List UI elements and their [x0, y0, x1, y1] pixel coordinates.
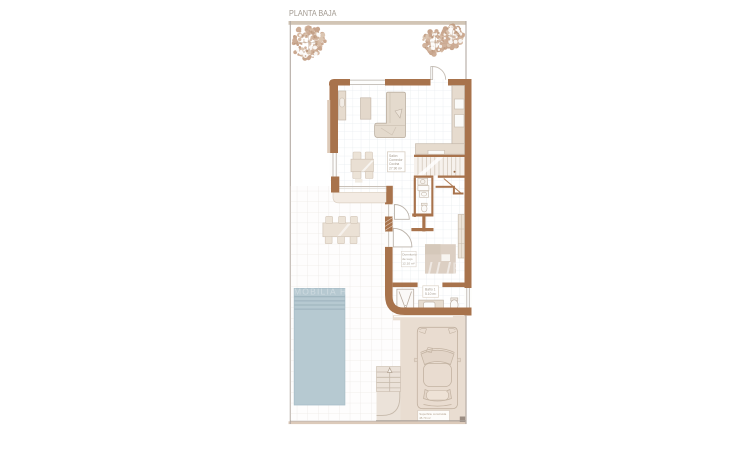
svg-text:27.90 m²: 27.90 m²: [389, 166, 403, 170]
svg-text:Baño 1: Baño 1: [425, 288, 436, 292]
svg-text:de Lujo: de Lujo: [402, 257, 412, 261]
svg-text:Cocina: Cocina: [389, 162, 399, 166]
svg-text:MOBILIA HOM: MOBILIA HOM: [294, 287, 363, 297]
svg-text:PLANTA BAJA: PLANTA BAJA: [289, 8, 337, 18]
svg-text:45.70 m²: 45.70 m²: [419, 416, 430, 420]
svg-text:12.10 m²: 12.10 m²: [402, 261, 414, 265]
svg-text:5.10 m²: 5.10 m²: [425, 292, 437, 296]
svg-text:E: E: [452, 259, 464, 278]
svg-text:Dormitorio: Dormitorio: [402, 253, 417, 257]
